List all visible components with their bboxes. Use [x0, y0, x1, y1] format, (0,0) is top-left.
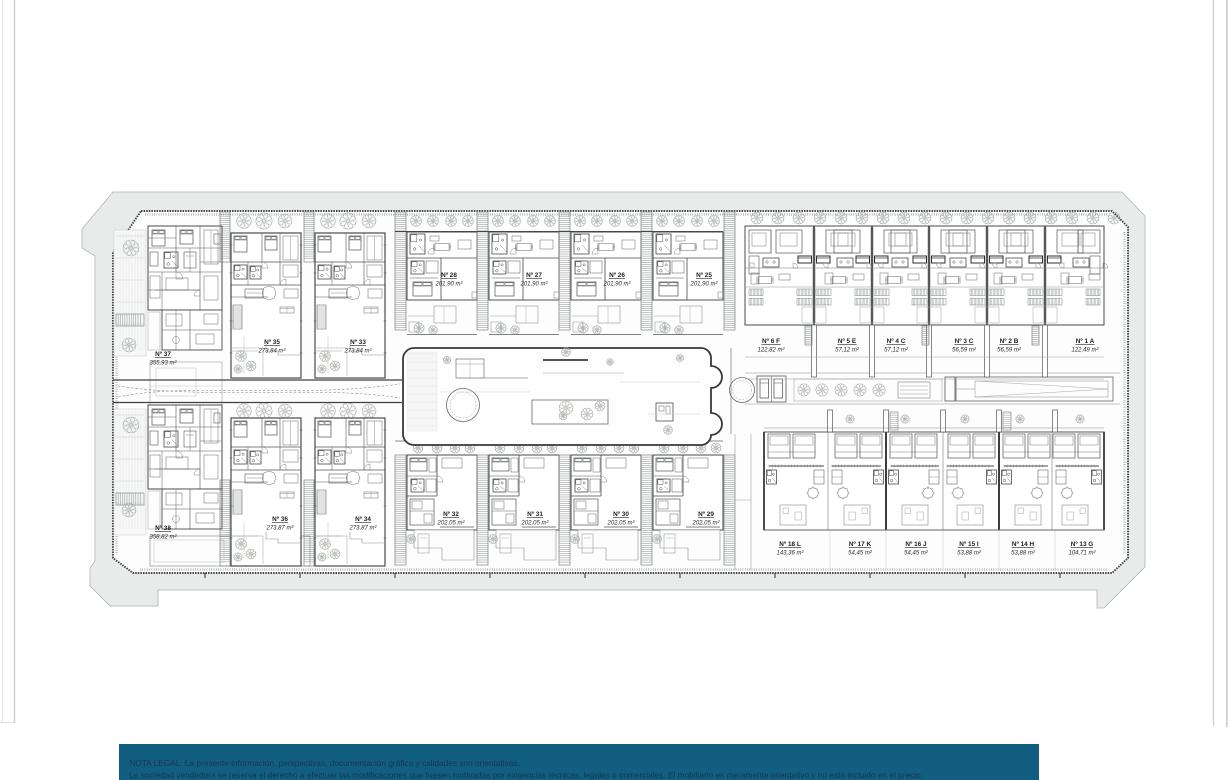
svg-text:Nº 3 C: Nº 3 C	[955, 338, 974, 345]
svg-text:Nº 5 E: Nº 5 E	[838, 338, 857, 345]
svg-text:201,90 m²: 201,90 m²	[602, 282, 631, 288]
svg-text:Nº 18 L: Nº 18 L	[779, 541, 801, 548]
svg-text:273,87 m²: 273,87 m²	[348, 526, 377, 532]
svg-text:355,93 m²: 355,93 m²	[149, 361, 177, 367]
svg-text:Nº 1 A: Nº 1 A	[1076, 338, 1095, 345]
svg-text:202,05 m²: 202,05 m²	[520, 521, 549, 527]
svg-text:122,82 m²: 122,82 m²	[757, 348, 785, 354]
svg-text:Nº 33: Nº 33	[350, 339, 366, 346]
svg-text:Nº 35: Nº 35	[264, 339, 280, 346]
svg-text:358,82 m²: 358,82 m²	[149, 535, 177, 541]
svg-text:202,05 m²: 202,05 m²	[436, 521, 465, 527]
svg-text:Nº 4 C: Nº 4 C	[887, 338, 906, 345]
svg-text:53,88 m²: 53,88 m²	[957, 551, 982, 557]
svg-text:Nº 36: Nº 36	[272, 516, 288, 523]
svg-text:57,12 m²: 57,12 m²	[835, 348, 860, 354]
svg-text:Nº 17 K: Nº 17 K	[849, 541, 872, 548]
svg-text:Nº 31: Nº 31	[527, 511, 543, 518]
svg-text:Nº 14 H: Nº 14 H	[1012, 541, 1035, 548]
svg-text:56,59 m²: 56,59 m²	[952, 348, 977, 354]
svg-text:54,45 m²: 54,45 m²	[848, 551, 873, 557]
svg-text:54,45 m²: 54,45 m²	[904, 551, 929, 557]
svg-text:Nº 15 I: Nº 15 I	[959, 541, 979, 548]
svg-text:273,84 m²: 273,84 m²	[257, 349, 286, 355]
svg-text:Nº 2 B: Nº 2 B	[1000, 338, 1019, 345]
svg-text:57,12 m²: 57,12 m²	[884, 348, 909, 354]
svg-text:Nº 16 J: Nº 16 J	[905, 541, 927, 548]
svg-text:202,05 m²: 202,05 m²	[606, 521, 635, 527]
svg-text:Nº 25: Nº 25	[696, 272, 712, 279]
svg-text:273,87 m²: 273,87 m²	[265, 526, 294, 532]
svg-text:Nº 6 F: Nº 6 F	[762, 338, 780, 345]
svg-text:Nº 30: Nº 30	[613, 511, 629, 518]
svg-text:Nº 29: Nº 29	[698, 511, 714, 518]
svg-text:Nº 26: Nº 26	[609, 272, 625, 279]
svg-text:201,90 m²: 201,90 m²	[519, 282, 548, 288]
svg-text:Nº 37: Nº 37	[155, 351, 171, 358]
svg-text:201,90 m²: 201,90 m²	[689, 282, 718, 288]
svg-text:273,84 m²: 273,84 m²	[343, 349, 372, 355]
svg-text:Nº 34: Nº 34	[355, 516, 371, 523]
svg-text:56,59 m²: 56,59 m²	[997, 348, 1022, 354]
svg-text:143,36 m²: 143,36 m²	[776, 551, 804, 557]
svg-text:104,71 m²: 104,71 m²	[1068, 551, 1096, 557]
svg-text:Nº 27: Nº 27	[526, 272, 542, 279]
svg-text:Nº 38: Nº 38	[155, 525, 171, 532]
svg-text:202,05 m²: 202,05 m²	[691, 521, 720, 527]
svg-text:Nº 28: Nº 28	[441, 272, 457, 279]
svg-text:Nº 32: Nº 32	[443, 511, 459, 518]
svg-text:122,49 m²: 122,49 m²	[1071, 348, 1099, 354]
svg-text:Nº 13 G: Nº 13 G	[1071, 541, 1094, 548]
svg-text:201,90 m²: 201,90 m²	[434, 282, 463, 288]
svg-text:53,88 m²: 53,88 m²	[1011, 551, 1036, 557]
